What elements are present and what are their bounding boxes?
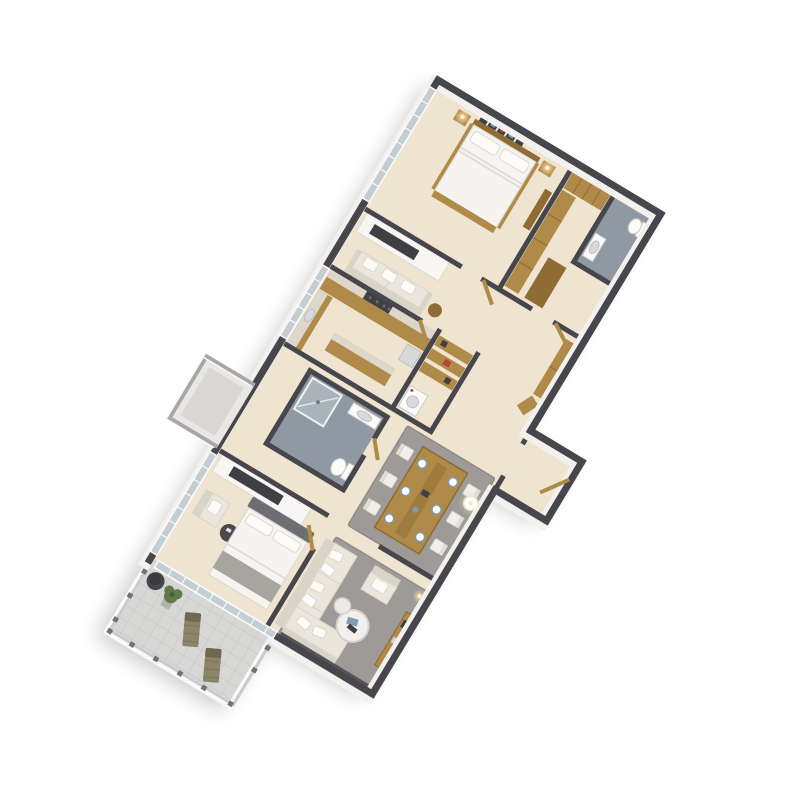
apartment-unit <box>51 50 712 800</box>
sun-lounger <box>182 612 201 647</box>
floor-plan-stage <box>0 0 800 800</box>
floor-plan-svg <box>0 0 800 800</box>
sun-lounger <box>203 648 222 683</box>
